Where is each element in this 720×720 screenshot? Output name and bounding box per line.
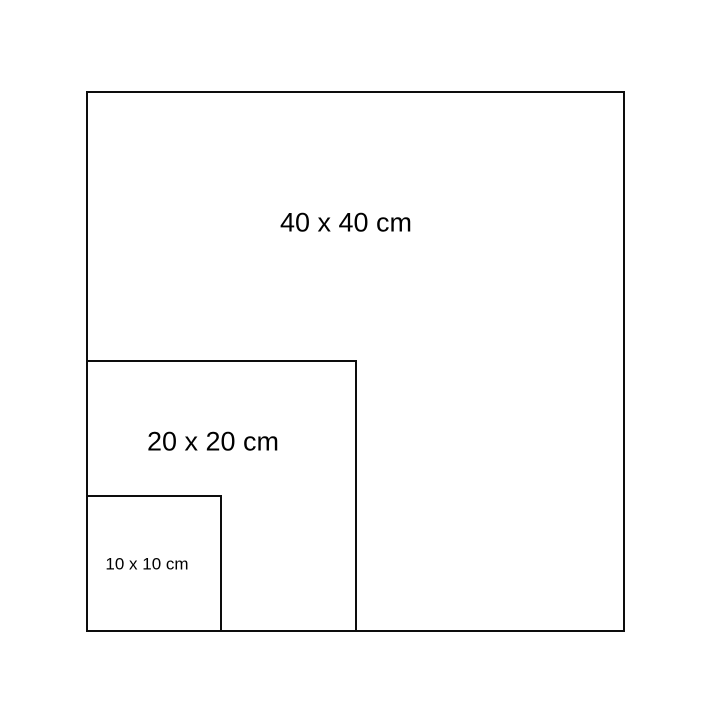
square-40x40-label: 40 x 40 cm (280, 210, 412, 237)
diagram-canvas: 40 x 40 cm 20 x 20 cm 10 x 10 cm (0, 0, 720, 720)
square-10x10-label: 10 x 10 cm (105, 556, 188, 573)
square-20x20-label: 20 x 20 cm (147, 429, 279, 456)
